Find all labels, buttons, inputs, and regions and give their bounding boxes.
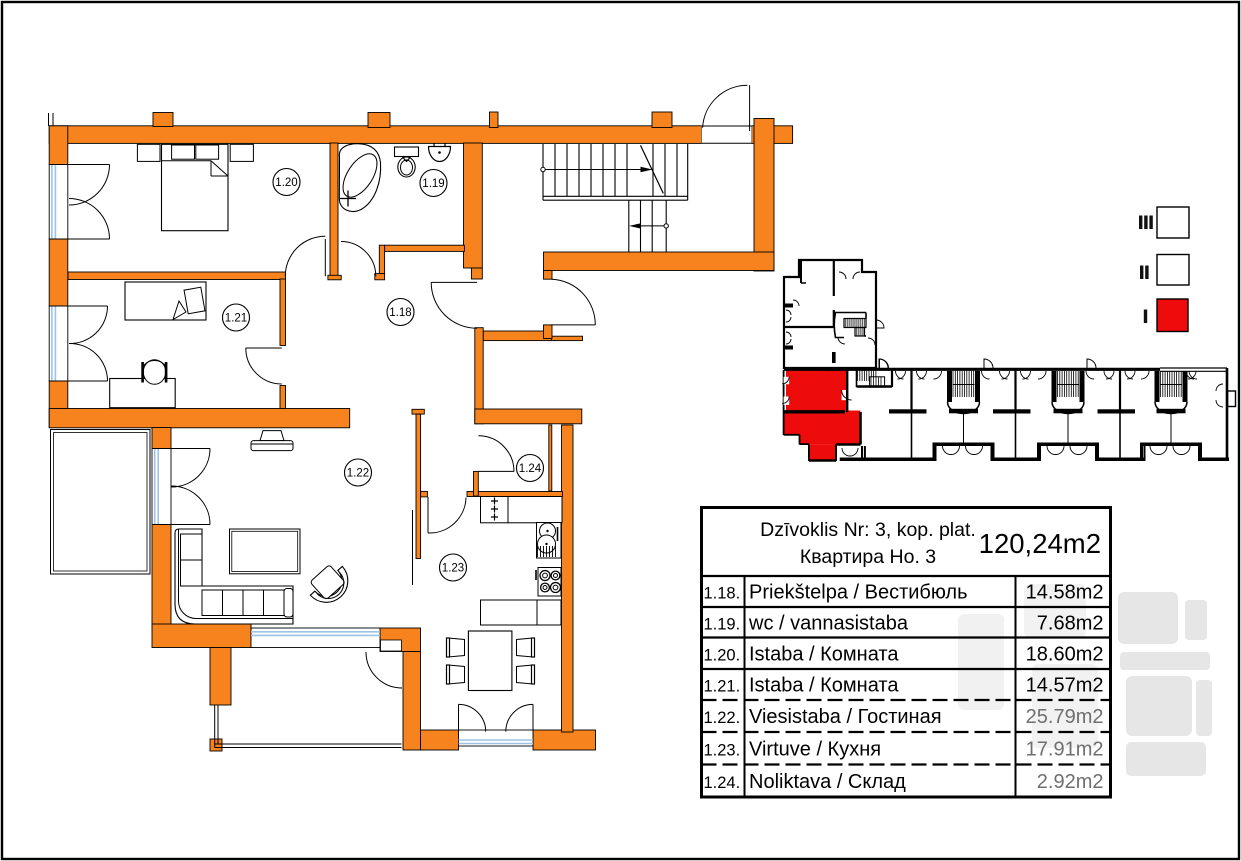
svg-text:1.20.: 1.20. [704,646,741,664]
svg-text:1.21: 1.21 [225,313,247,325]
svg-text:Priekštelpa / Вестибюль: Priekštelpa / Вестибюль [749,582,968,604]
svg-text:1.19: 1.19 [422,178,444,190]
svg-text:Dzīvoklis Nr: 3, kop. plat.: Dzīvoklis Nr: 3, kop. plat. [760,519,976,541]
svg-text:Istaba / Комната: Istaba / Комната [749,675,899,697]
svg-text:1.19.: 1.19. [704,615,741,633]
svg-text:1.23.: 1.23. [704,741,741,759]
svg-text:25.79m2: 25.79m2 [1026,706,1104,728]
svg-text:Viesistaba / Гостиная: Viesistaba / Гостиная [749,706,942,728]
svg-text:Virtuve / Кухня: Virtuve / Кухня [749,738,881,760]
svg-text:1.22.: 1.22. [704,709,741,727]
svg-text:17.91m2: 17.91m2 [1026,738,1104,760]
svg-text:18.60m2: 18.60m2 [1026,643,1104,665]
svg-text:14.57m2: 14.57m2 [1026,675,1104,697]
svg-text:wc / vannasistaba: wc / vannasistaba [748,612,909,634]
svg-text:1.20: 1.20 [275,177,297,189]
svg-text:Noliktava / Склад: Noliktava / Склад [749,771,906,793]
svg-text:1.22: 1.22 [347,468,369,480]
svg-text:1.21.: 1.21. [704,678,741,696]
svg-text:1.24: 1.24 [519,463,542,475]
svg-text:7.68m2: 7.68m2 [1037,612,1104,634]
svg-text:1.18.: 1.18. [704,585,741,603]
svg-text:1.23: 1.23 [442,563,464,575]
svg-text:1.18: 1.18 [389,307,411,319]
svg-text:2.92m2: 2.92m2 [1037,771,1104,793]
svg-text:Istaba / Комната: Istaba / Комната [749,643,899,665]
svg-text:1.24.: 1.24. [704,774,741,792]
svg-text:14.58m2: 14.58m2 [1026,582,1104,604]
svg-text:Квартира Но. 3: Квартира Но. 3 [800,546,936,568]
svg-text:120,24m2: 120,24m2 [979,528,1101,559]
